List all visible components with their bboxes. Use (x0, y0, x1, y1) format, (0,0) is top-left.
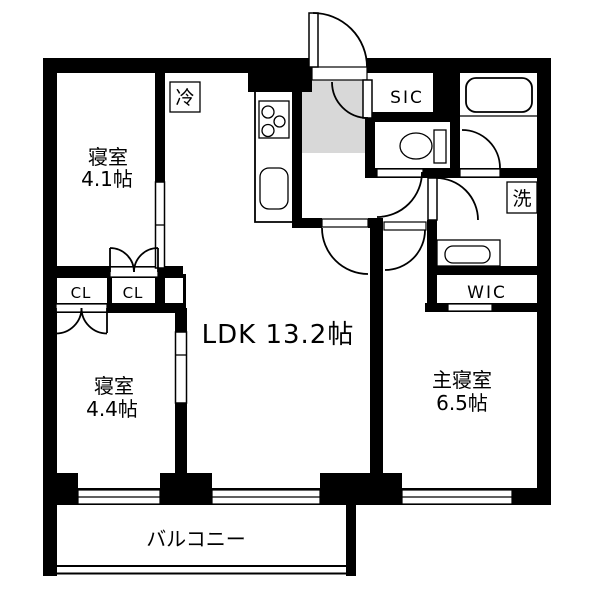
toilet-door-opening (377, 169, 423, 177)
wic-label: WIC (467, 283, 507, 303)
master-name-label: 主寝室 (432, 368, 492, 392)
wall-closet-divider (107, 278, 112, 303)
wall-kitchen-top (248, 73, 312, 92)
bedroom2-size-label: 4.4帖 (86, 397, 138, 421)
ldk-door-opening (322, 219, 368, 227)
wall-bedroom1-right (155, 73, 165, 182)
sic-door-leaf (363, 80, 372, 118)
bedroom1-size-label: 4.1帖 (81, 167, 133, 191)
wic-opening (448, 304, 492, 311)
wall-ldk-notch (183, 274, 186, 310)
bedroom2-sliding-door (176, 332, 187, 403)
washroom-door-leaf (428, 178, 437, 220)
refrigerator-label: 冷 (175, 87, 194, 109)
wall-bath-left (450, 73, 460, 178)
ldk-label: LDK 13.2帖 (202, 320, 355, 350)
pier-bottom-2 (160, 473, 212, 505)
wall-top-right (367, 58, 551, 73)
bath-door-opening (460, 169, 500, 177)
wall-right (537, 58, 551, 505)
bedroom2-name-label: 寝室 (94, 374, 134, 398)
closet-right-label: CL (123, 284, 144, 302)
bedroom1-name-label: 寝室 (88, 145, 128, 169)
master-size-label: 6.5帖 (436, 391, 488, 415)
floorplan-drawing: 寝室 4.1帖 冷 SIC 洗 LDK 13.2帖 CL CL WIC 寝室 4… (0, 0, 600, 600)
closet-left-label: CL (71, 284, 92, 302)
floorplan: 寝室 4.1帖 冷 SIC 洗 LDK 13.2帖 CL CL WIC 寝室 4… (0, 0, 600, 600)
pier-bottom-3 (320, 473, 402, 505)
sic-label: SIC (390, 88, 424, 108)
wall-washroom-left (427, 220, 437, 312)
washer-label: 洗 (512, 188, 531, 210)
entrance-sill (312, 67, 367, 80)
wall-top-left (43, 58, 312, 73)
pier-bottom-1 (57, 473, 78, 505)
balcony-label: バルコニー (146, 527, 246, 551)
wall-washroom-wic (437, 266, 537, 275)
entrance-door-leaf (309, 13, 318, 67)
wall-hall-south-left (292, 218, 322, 228)
wall-ldk-master (370, 222, 383, 473)
wall-kitchen-hall (292, 92, 302, 228)
windows (78, 490, 512, 504)
master-door-opening (384, 222, 426, 230)
